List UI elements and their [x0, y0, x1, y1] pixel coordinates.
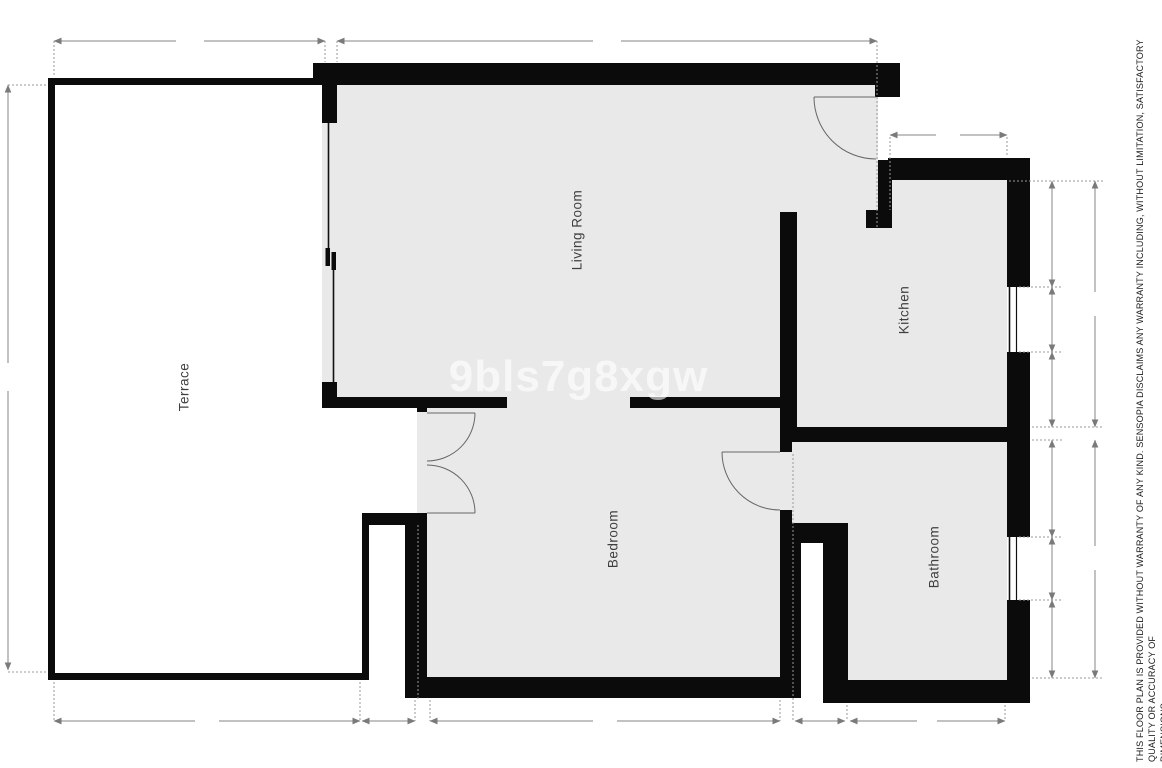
- room-label-bathroom: Bathroom: [927, 526, 942, 589]
- room-label-bedroom: Bedroom: [606, 510, 621, 568]
- bedroom-left-wall: [405, 513, 427, 698]
- bathroom-left-wall: [823, 543, 848, 683]
- bathroom-nook-stub: [792, 523, 848, 543]
- kitchen-bathroom-wall: [797, 427, 1030, 442]
- living-left-stub-bottom: [322, 382, 337, 398]
- living-kitchen-wall: [780, 212, 797, 442]
- disclaimer-line-1: THIS FLOOR PLAN IS PROVIDED WITHOUT WARR…: [1134, 10, 1158, 762]
- terrace-wall-bottom: [48, 673, 365, 680]
- room-label-kitchen: Kitchen: [897, 286, 912, 335]
- living-top-wall: [313, 63, 875, 85]
- kitchen-window: [1007, 287, 1030, 352]
- bedroom-bottom-wall: [405, 677, 801, 698]
- bathroom-window: [1007, 537, 1030, 600]
- bedroom-right-wall-upper: [780, 408, 792, 452]
- terrace-wall-left: [48, 78, 55, 680]
- disclaimer-text: THIS FLOOR PLAN IS PROVIDED WITHOUT WARR…: [1134, 10, 1162, 762]
- bedroom-right-wall-mid: [780, 510, 792, 523]
- terrace-wall-top: [48, 78, 313, 85]
- right-wall-middle: [1007, 352, 1030, 537]
- living-left-stub-top: [322, 85, 337, 123]
- room-label-terrace: Terrace: [177, 363, 192, 412]
- bathroom-bottom-wall: [823, 680, 1030, 703]
- watermark-text: 9bls7g8xgw: [406, 352, 751, 402]
- room-label-living-room: Living Room: [570, 190, 585, 271]
- entry-stub: [866, 210, 892, 228]
- terrace-wall-right: [362, 520, 369, 680]
- entry-corner-block: [875, 63, 900, 97]
- right-wall-upper: [1007, 158, 1030, 287]
- bedroom-right-wall-lower: [780, 523, 801, 697]
- floor-plan-page: { "floor_plan": { "rooms": [ {"name": "T…: [0, 0, 1162, 768]
- disclaimer-line-2: DIMENSIONS.: [1158, 10, 1162, 762]
